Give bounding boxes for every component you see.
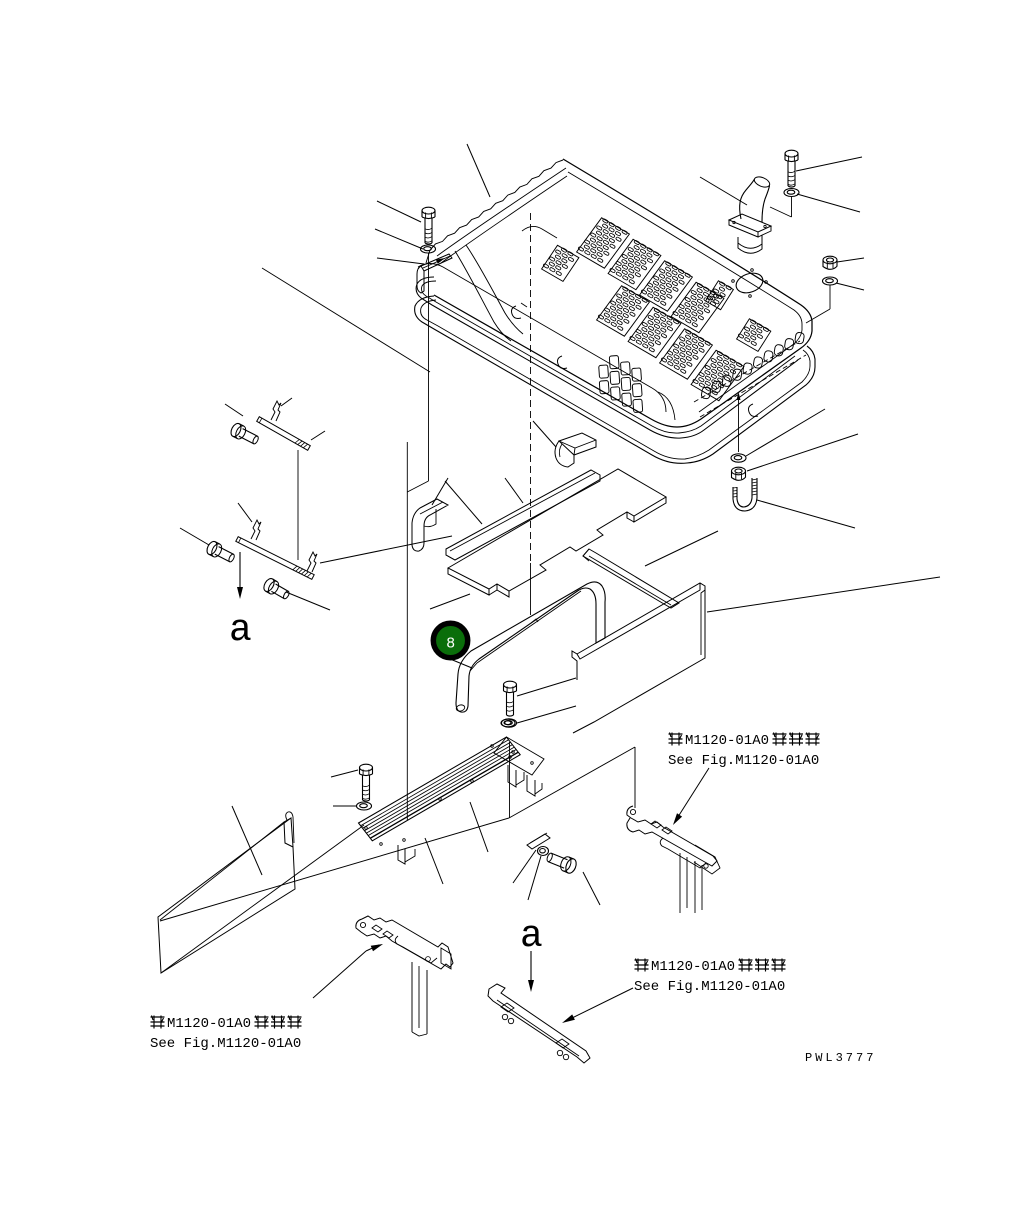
svg-text:M1120-01A0: M1120-01A0 [651,959,735,975]
svg-text:See Fig.M1120-01A0: See Fig.M1120-01A0 [150,1036,301,1052]
svg-text:PWL3777: PWL3777 [805,1051,876,1065]
svg-text:8: 8 [447,635,455,652]
svg-text:a: a [229,609,252,652]
svg-text:M1120-01A0: M1120-01A0 [167,1016,251,1032]
svg-text:M1120-01A0: M1120-01A0 [685,733,769,749]
svg-text:See Fig.M1120-01A0: See Fig.M1120-01A0 [634,979,785,995]
svg-text:See Fig.M1120-01A0: See Fig.M1120-01A0 [668,753,819,769]
